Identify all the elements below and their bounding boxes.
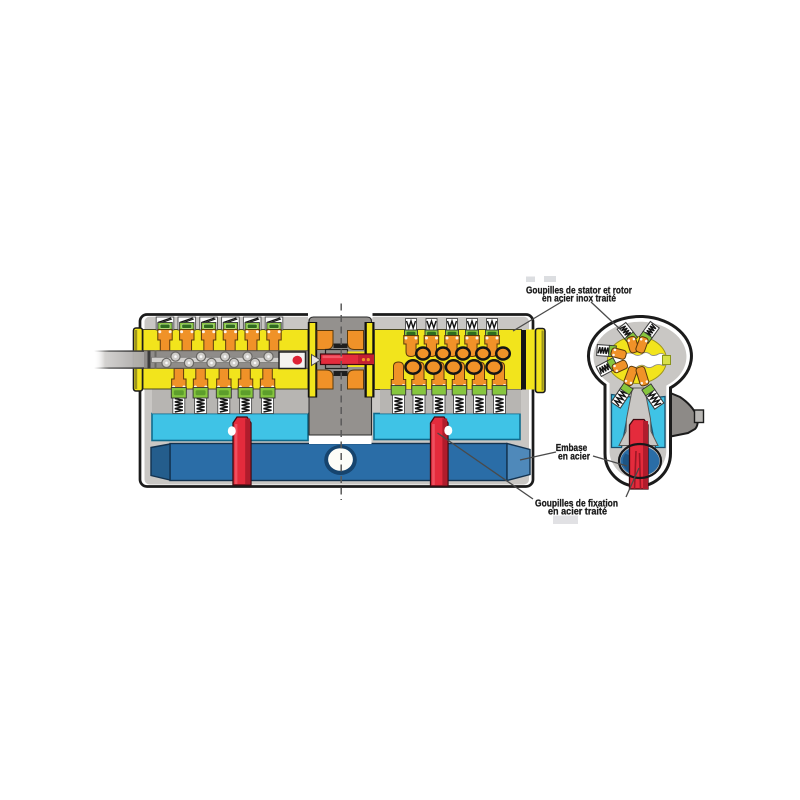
svg-text:en acier traité: en acier traité — [548, 506, 607, 518]
svg-text:en acier inox traité: en acier inox traité — [542, 293, 616, 305]
svg-text:en acier: en acier — [558, 451, 590, 463]
